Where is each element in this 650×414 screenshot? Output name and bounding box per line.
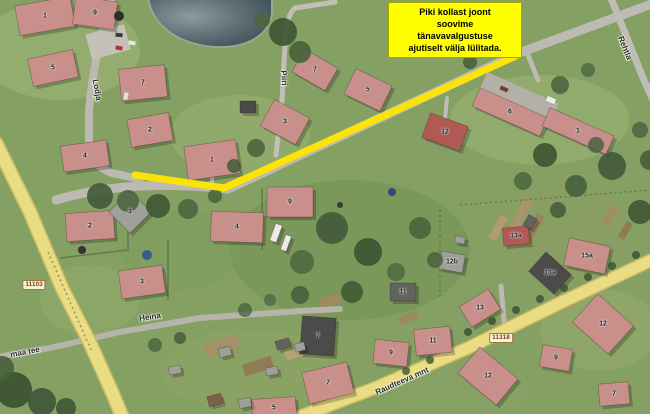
house-roof <box>502 226 529 246</box>
house-roof <box>210 211 263 243</box>
house-roof <box>267 187 313 217</box>
annotation-line: Piki kollast joont <box>391 6 519 18</box>
house-roof <box>598 382 630 407</box>
house-roof <box>390 283 416 301</box>
house-roof <box>373 339 409 366</box>
house-roof <box>265 366 278 376</box>
annotation-line: ajutiselt välja lülitada. <box>391 42 519 54</box>
map-canvas[interactable]: 19574213751261233941177911512b13a13a15a1… <box>0 0 650 414</box>
house-roof <box>539 345 572 372</box>
house-roof <box>240 101 256 113</box>
house-roof <box>454 236 465 245</box>
house-roof <box>168 365 181 375</box>
house-roof <box>118 265 165 299</box>
annotation-note: Piki kollast joont soovime tänavavalgust… <box>388 2 522 58</box>
aerial-imagery <box>0 0 650 414</box>
house-roof <box>65 210 115 241</box>
house-roof <box>414 326 453 356</box>
annotation-line: tänavavalgustuse <box>391 30 519 42</box>
house-roof <box>251 396 296 414</box>
annotation-line: soovime <box>391 18 519 30</box>
